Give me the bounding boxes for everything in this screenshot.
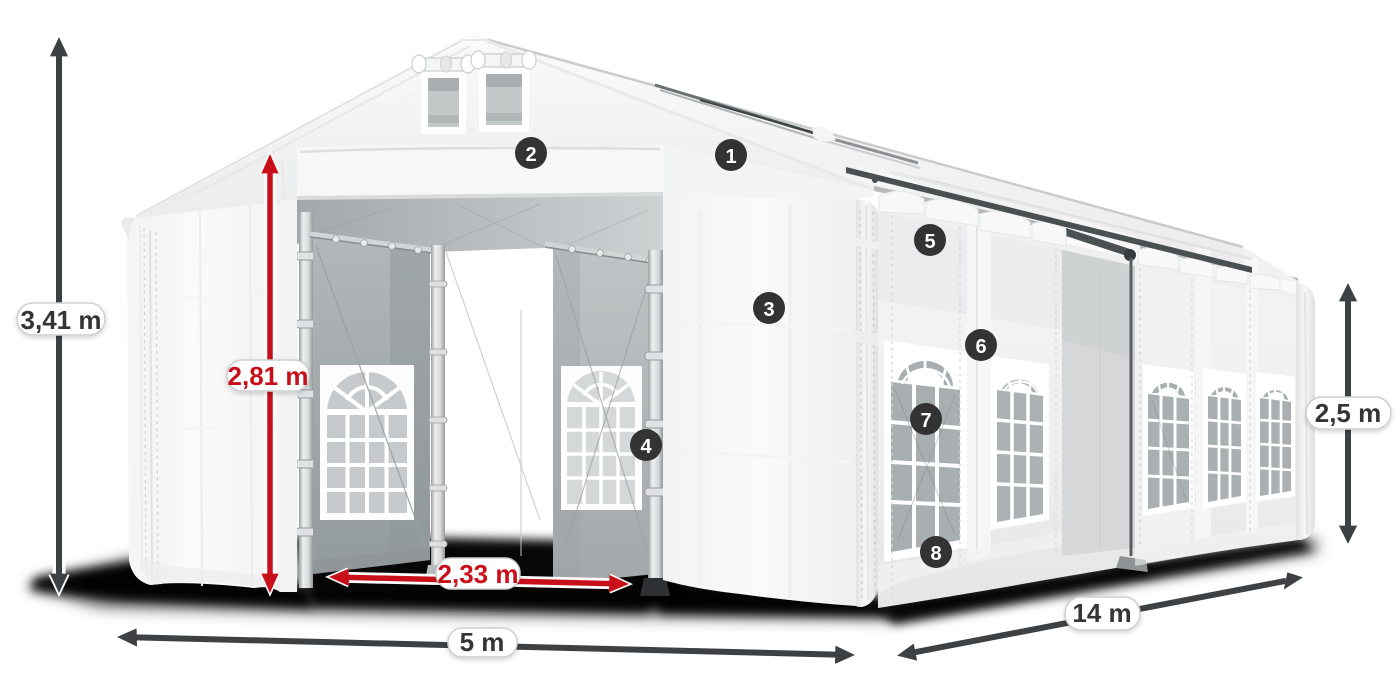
- svg-text:3,41 m: 3,41 m: [21, 305, 102, 335]
- svg-text:2,81 m: 2,81 m: [228, 361, 309, 391]
- svg-text:3: 3: [763, 299, 774, 321]
- svg-text:2,5 m: 2,5 m: [1315, 398, 1382, 428]
- svg-text:7: 7: [920, 410, 931, 432]
- svg-text:5 m: 5 m: [460, 627, 505, 657]
- svg-text:2: 2: [525, 144, 536, 166]
- svg-text:6: 6: [975, 336, 986, 358]
- svg-text:1: 1: [725, 146, 736, 168]
- svg-text:2,33 m: 2,33 m: [438, 559, 519, 589]
- svg-text:8: 8: [930, 543, 941, 565]
- svg-text:4: 4: [640, 436, 652, 458]
- svg-text:5: 5: [924, 231, 935, 253]
- svg-text:14 m: 14 m: [1072, 598, 1131, 628]
